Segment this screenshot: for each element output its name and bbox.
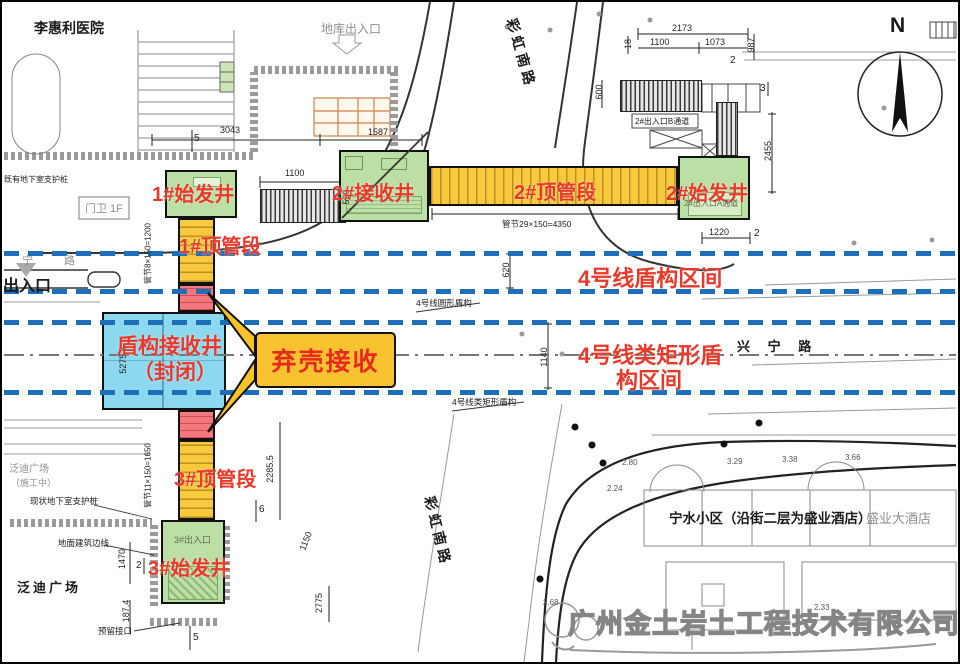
dim-2775: 2775: [314, 583, 324, 623]
abandon-shell-callout: 弃壳接收: [255, 332, 396, 388]
elev-280: 2.80: [622, 458, 638, 467]
company-watermark: 广州金土岩土工程技术有限公司: [568, 602, 960, 641]
tick-3a: 3: [760, 83, 766, 94]
label-shaft3-start: 3#始发井: [148, 552, 230, 581]
dim-3043: 3043: [220, 125, 240, 135]
label-line4-shield-zone: 4号线盾构区间: [578, 261, 722, 293]
elev-268: 2.68: [543, 598, 559, 607]
compass-n-label: N: [890, 14, 905, 38]
dim-1140: 1140: [539, 337, 549, 377]
tick-2b: 2: [754, 228, 760, 239]
label-pipe2: 2#顶管段: [514, 176, 596, 205]
tick-2a: 2: [730, 55, 736, 66]
label-exit-3: 3#出入口: [174, 533, 211, 546]
dim-2173: 2173: [672, 23, 692, 33]
label-under-construction: （施工中）: [11, 476, 56, 489]
dim-seg3: 管节11×150=1650: [143, 436, 154, 516]
label-pipe1: 1#顶管段: [179, 230, 261, 259]
dim-1100a: 1100: [285, 168, 304, 178]
site-plan-sheet: 1#始发井 1#顶管段 2#接收井 2#顶管段 2#始发井 4号线盾构区间 4号…: [0, 0, 960, 664]
label-fandi-plaza: 泛迪广场: [17, 577, 81, 596]
label-basement-piles: 现状地下室支护桩: [30, 495, 98, 507]
label-hospital: 李惠利医院: [34, 18, 104, 38]
label-hotel: 盛业大酒店: [866, 508, 931, 527]
dim-2455: 2455: [763, 131, 773, 171]
dim-987: 987: [746, 25, 756, 65]
label-exit-b: 2#出入口B通道: [635, 116, 689, 127]
tick-2c: 2: [136, 560, 142, 571]
elev-338: 3.38: [782, 455, 798, 464]
label-pipe3: 3#顶管段: [174, 463, 256, 492]
tick-6a: 6: [259, 504, 265, 515]
dim-620: 620: [501, 250, 511, 290]
dim-1220: 1220: [709, 227, 729, 237]
label-exit-a: 2#出入口A通道: [684, 198, 738, 209]
label-ning-road: 宁 路: [22, 252, 89, 268]
elev-366: 3.66: [845, 453, 861, 462]
label-shield-receive-2: （封闭）: [133, 356, 217, 386]
elev-329: 3.29: [727, 457, 743, 466]
elev-224: 2.24: [607, 484, 623, 493]
label-support-piles-top: 既有地下室支护桩: [4, 174, 68, 185]
label-garage-exit: 地库出入口: [321, 20, 381, 37]
dim-seg2: 管节29×150=4350: [502, 218, 571, 230]
label-ningshui-block: 宁水小区（沿街二层为盛业酒店）: [669, 507, 872, 527]
label-shaft1-start: 1#始发井: [152, 178, 234, 207]
dim-2285: 2285.5: [265, 449, 275, 489]
callout-text: 弃壳接收: [271, 342, 379, 378]
label-xingning-road: 兴 宁 路: [737, 336, 818, 355]
dim-1587: 1587: [368, 127, 388, 137]
dim-1073: 1073: [705, 37, 725, 47]
label-entrance: 出入口: [3, 272, 51, 296]
dim-1100b: 1100: [650, 37, 669, 47]
label-line4-rect-zone-2: 构区间: [616, 363, 682, 395]
label-building-line: 地面建筑边线: [58, 537, 109, 549]
label-shaft2-receive: 2#接收井: [332, 177, 414, 206]
label-gate: 门卫 1F: [85, 200, 123, 216]
dim-600: 600: [594, 72, 604, 112]
tick-5b: 5: [193, 632, 199, 643]
tick-5a: 5: [194, 133, 200, 144]
dim-18: 18: [623, 24, 633, 64]
label-round-shield-tag: 4号线圆形盾构: [416, 297, 472, 309]
label-reserved-port: 预留接口: [98, 625, 132, 637]
label-rect-shield-tag: 4号线类矩形盾构: [452, 396, 516, 408]
dim-1470: 1470: [117, 539, 127, 579]
label-fandi-gray: 泛迪广场: [9, 460, 49, 475]
dim-seg1: 管节8×150=1200: [143, 214, 154, 294]
